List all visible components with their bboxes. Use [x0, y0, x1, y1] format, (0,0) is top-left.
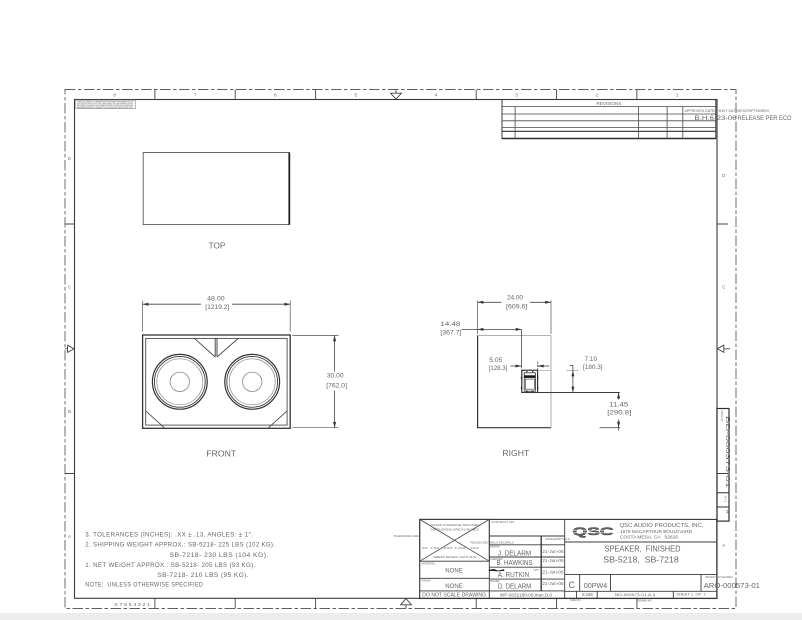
svg-text:4: 4 — [435, 93, 438, 98]
svg-text:SB-7218- 230 LBS (104 KG).: SB-7218- 230 LBS (104 KG). — [170, 552, 269, 559]
svg-text:DO NOT SCALE DRAWING: DO NOT SCALE DRAWING — [422, 593, 486, 599]
svg-text:5.05: 5.05 — [489, 357, 502, 364]
svg-text:REV/NO. NO DACREO: REV/NO. NO DACREO — [706, 575, 733, 579]
svg-text:8.188: 8.188 — [582, 592, 593, 597]
svg-text:D: D — [68, 156, 71, 161]
svg-text:RELEASE PER ECO: RELEASE PER ECO — [738, 115, 792, 122]
svg-text:2. SHIPPING WEIGHT APPROX.: SB: 2. SHIPPING WEIGHT APPROX.: SB-5218- 225… — [85, 542, 275, 549]
svg-text:DWG NO: DWG NO — [720, 411, 724, 422]
svg-text:8: 8 — [113, 93, 116, 98]
svg-text:[762.0]: [762.0] — [326, 382, 347, 389]
svg-text:48.00: 48.00 — [207, 295, 225, 302]
svg-text:[180.3]: [180.3] — [583, 364, 603, 371]
svg-text:21-Jun-06: 21-Jun-06 — [542, 549, 564, 554]
svg-text:6: 6 — [274, 93, 277, 98]
svg-text:7: 7 — [194, 93, 197, 98]
svg-text:3: 3 — [515, 93, 518, 98]
svg-text:TOP: TOP — [209, 240, 226, 250]
svg-text:NONE: NONE — [445, 569, 463, 575]
svg-text:B. HAWKINS: B. HAWKINS — [497, 560, 533, 567]
svg-text:ARO-000573-01: ARO-000573-01 — [704, 581, 760, 590]
svg-text:1. NET WEIGHT APPROX.: SB-5218: 1. NET WEIGHT APPROX.: SB-5218- 205 LBS … — [85, 562, 255, 569]
svg-text:SPEAKER, FINISHED: SPEAKER, FINISHED — [605, 543, 681, 553]
svg-text:NO-000573-01.A.3: NO-000573-01.A.3 — [615, 593, 655, 597]
svg-text:21-Jun-06: 21-Jun-06 — [542, 581, 564, 586]
svg-text:QSC: QSC — [573, 526, 614, 538]
svg-text:FINISH: FINISH — [422, 579, 431, 583]
svg-text:21-Jun-06: 21-Jun-06 — [542, 570, 564, 575]
svg-text:B: B — [68, 409, 71, 414]
svg-text:SB-7218- 210 LBS (95 KG).: SB-7218- 210 LBS (95 KG). — [157, 572, 249, 579]
svg-text:DATEAPPROVALS: DATEAPPROVALS — [545, 537, 570, 541]
svg-text:COSTA MESA, CA 92626: COSTA MESA, CA 92626 — [620, 534, 679, 539]
svg-text:TOLERANCES ARE:: TOLERANCES ARE: — [393, 534, 419, 538]
svg-text:D. DELARM: D. DELARM — [498, 583, 532, 590]
svg-text:D: D — [722, 173, 725, 178]
svg-text:C: C — [722, 285, 725, 290]
svg-text:ANGLES DECIMALS DECIMALS: ANGLES DECIMALS DECIMALS — [471, 540, 514, 544]
svg-text:REVISIONS: REVISIONS — [596, 101, 621, 107]
svg-text:NOTE: UNLESS OTHERWISE SPECIF: NOTE: UNLESS OTHERWISE SPECIFIED — [85, 581, 203, 588]
svg-text:ISSUED: ISSUED — [490, 579, 500, 583]
svg-text:MATERIAL: MATERIAL — [422, 562, 436, 566]
svg-text:00PW4: 00PW4 — [584, 581, 608, 590]
svg-text:.XX ±.03 .XXX ±.010 ±1/: .XX ±.03 .XXX ±.010 ±1/2 — [421, 546, 479, 550]
svg-text:BREAK EDGES .010 R MAX: BREAK EDGES .010 R MAX — [434, 555, 477, 559]
svg-text:X 7 6 5 4 3 2 1: X 7 6 5 4 3 2 1 — [114, 602, 150, 607]
svg-text:[290.8]: [290.8] — [607, 410, 631, 417]
svg-text:[128.3]: [128.3] — [489, 365, 508, 372]
svg-text:DRAWN: DRAWN — [490, 545, 500, 549]
svg-text:APPROVED DATECHKD/T DATEDESCRI: APPROVED DATECHKD/T DATEDESCRIPTIONREV — [685, 108, 770, 113]
svg-text:BD-000373-01: BD-000373-01 — [724, 416, 730, 488]
svg-text:1: 1 — [676, 93, 679, 98]
svg-text:A: A — [722, 543, 725, 548]
svg-text:DRAWN NO.: DRAWN NO. — [637, 599, 652, 603]
svg-text:UNLESS OTHERWISE SPECIFIED: UNLESS OTHERWISE SPECIFIED — [429, 523, 479, 527]
svg-text:2: 2 — [596, 93, 599, 98]
svg-text:RIGHT: RIGHT — [502, 448, 529, 458]
svg-text:[367.7]: [367.7] — [440, 330, 461, 337]
svg-text:NXT: NXT — [534, 568, 540, 572]
svg-text:B.H.6-23-06: B.H.6-23-06 — [695, 115, 737, 122]
svg-text:11.45: 11.45 — [609, 401, 628, 408]
svg-text:DIMENSIONS ARE IN INCHES: DIMENSIONS ARE IN INCHES — [430, 528, 478, 532]
svg-text:A. RUTKIN: A. RUTKIN — [498, 572, 529, 579]
svg-text:5: 5 — [355, 93, 358, 98]
svg-text:14.48: 14.48 — [440, 321, 460, 328]
svg-text:J. DELARM: J. DELARM — [498, 550, 531, 557]
svg-text:[1219.2]: [1219.2] — [205, 304, 229, 311]
svg-text:7.10: 7.10 — [585, 356, 598, 363]
svg-text:SB-5218, SB-7218: SB-5218, SB-7218 — [603, 555, 679, 565]
svg-text:24.00: 24.00 — [507, 295, 523, 302]
svg-text:NONE: NONE — [445, 584, 463, 590]
svg-text:SIZE NO.: SIZE NO. — [570, 598, 581, 602]
svg-text:WP-0032180-00.man.D.0: WP-0032180-00.man.D.0 — [500, 592, 553, 597]
svg-text:SHEET 1 OF 1: SHEET 1 OF 1 — [676, 593, 705, 597]
svg-text:C: C — [569, 580, 576, 590]
svg-text:[609.6]: [609.6] — [506, 303, 527, 310]
svg-text:PERMISSION AND CONSENT OF QSC: PERMISSION AND CONSENT OF QSC AUDIO PROD… — [77, 106, 133, 109]
svg-text:FRONT: FRONT — [206, 449, 236, 459]
svg-text:21-Jun-06: 21-Jun-06 — [542, 558, 564, 563]
svg-text:30.00: 30.00 — [327, 373, 344, 380]
svg-text:SH 1: SH 1 — [724, 496, 728, 503]
svg-text:C: C — [68, 285, 71, 290]
svg-text:3. TOLERANCES (INCHES): .XX ±: 3. TOLERANCES (INCHES): .XX ± .13, ANGLE… — [85, 531, 253, 539]
svg-text:1675 MACARTHUR BOULEVARD: 1675 MACARTHUR BOULEVARD — [620, 529, 692, 534]
svg-text:CONTRACT NO.: CONTRACT NO. — [491, 520, 515, 524]
svg-text:A: A — [68, 534, 71, 539]
